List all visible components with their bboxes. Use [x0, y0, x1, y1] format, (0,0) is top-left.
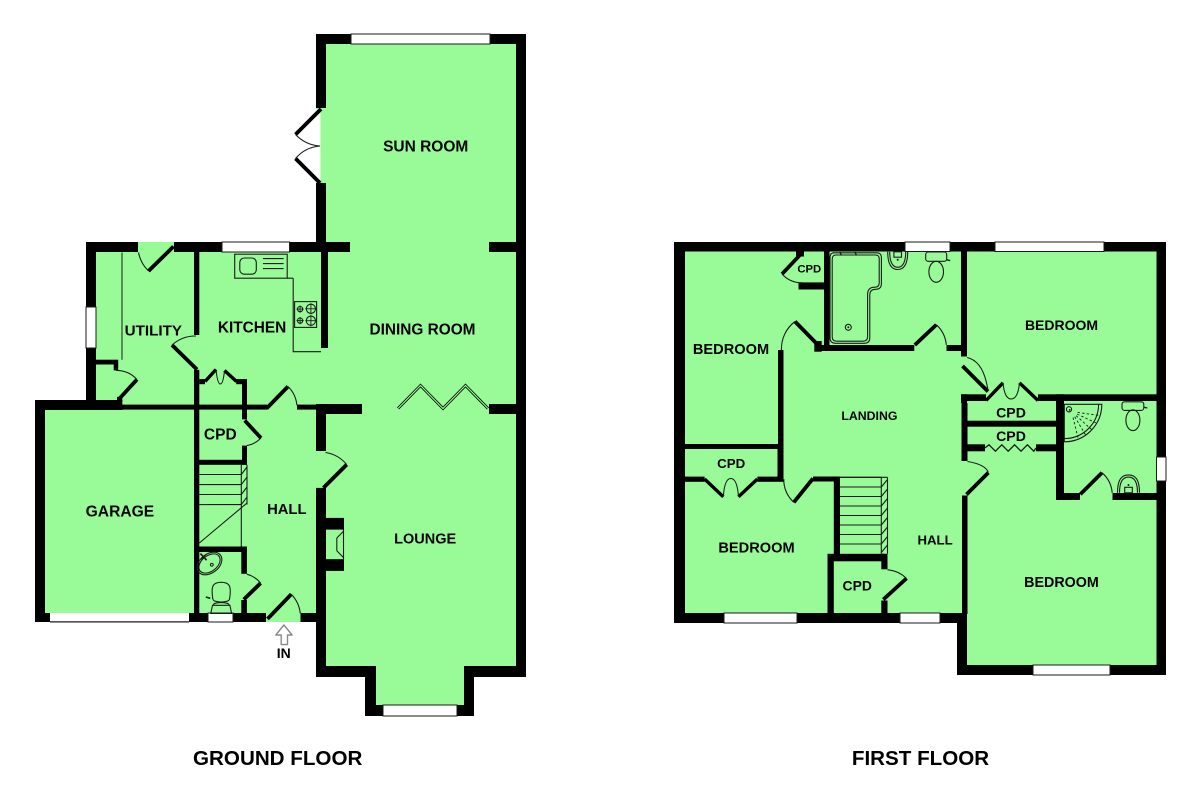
svg-text:CPD: CPD	[717, 456, 745, 471]
svg-text:CPD: CPD	[797, 263, 821, 275]
svg-text:CPD: CPD	[843, 578, 872, 594]
svg-text:HALL: HALL	[918, 533, 953, 548]
svg-text:BEDROOM: BEDROOM	[1025, 317, 1098, 333]
svg-text:GARAGE: GARAGE	[86, 503, 154, 520]
svg-text:LOUNGE: LOUNGE	[394, 531, 456, 547]
svg-text:KITCHEN: KITCHEN	[218, 320, 286, 337]
svg-text:FIRST FLOOR: FIRST FLOOR	[852, 747, 989, 770]
svg-text:HALL: HALL	[267, 502, 306, 518]
svg-text:BEDROOM: BEDROOM	[1024, 575, 1099, 591]
svg-text:UTILITY: UTILITY	[125, 322, 182, 339]
svg-text:BEDROOM: BEDROOM	[693, 342, 769, 358]
svg-text:SUN ROOM: SUN ROOM	[383, 139, 468, 156]
svg-text:GROUND FLOOR: GROUND FLOOR	[193, 747, 362, 770]
svg-text:CPD: CPD	[996, 404, 1026, 420]
svg-text:BEDROOM: BEDROOM	[718, 540, 794, 556]
svg-text:CPD: CPD	[996, 428, 1026, 444]
svg-text:LANDING: LANDING	[841, 409, 897, 423]
svg-text:IN: IN	[277, 645, 291, 661]
svg-text:CPD: CPD	[204, 427, 237, 444]
svg-text:DINING ROOM: DINING ROOM	[369, 322, 475, 339]
